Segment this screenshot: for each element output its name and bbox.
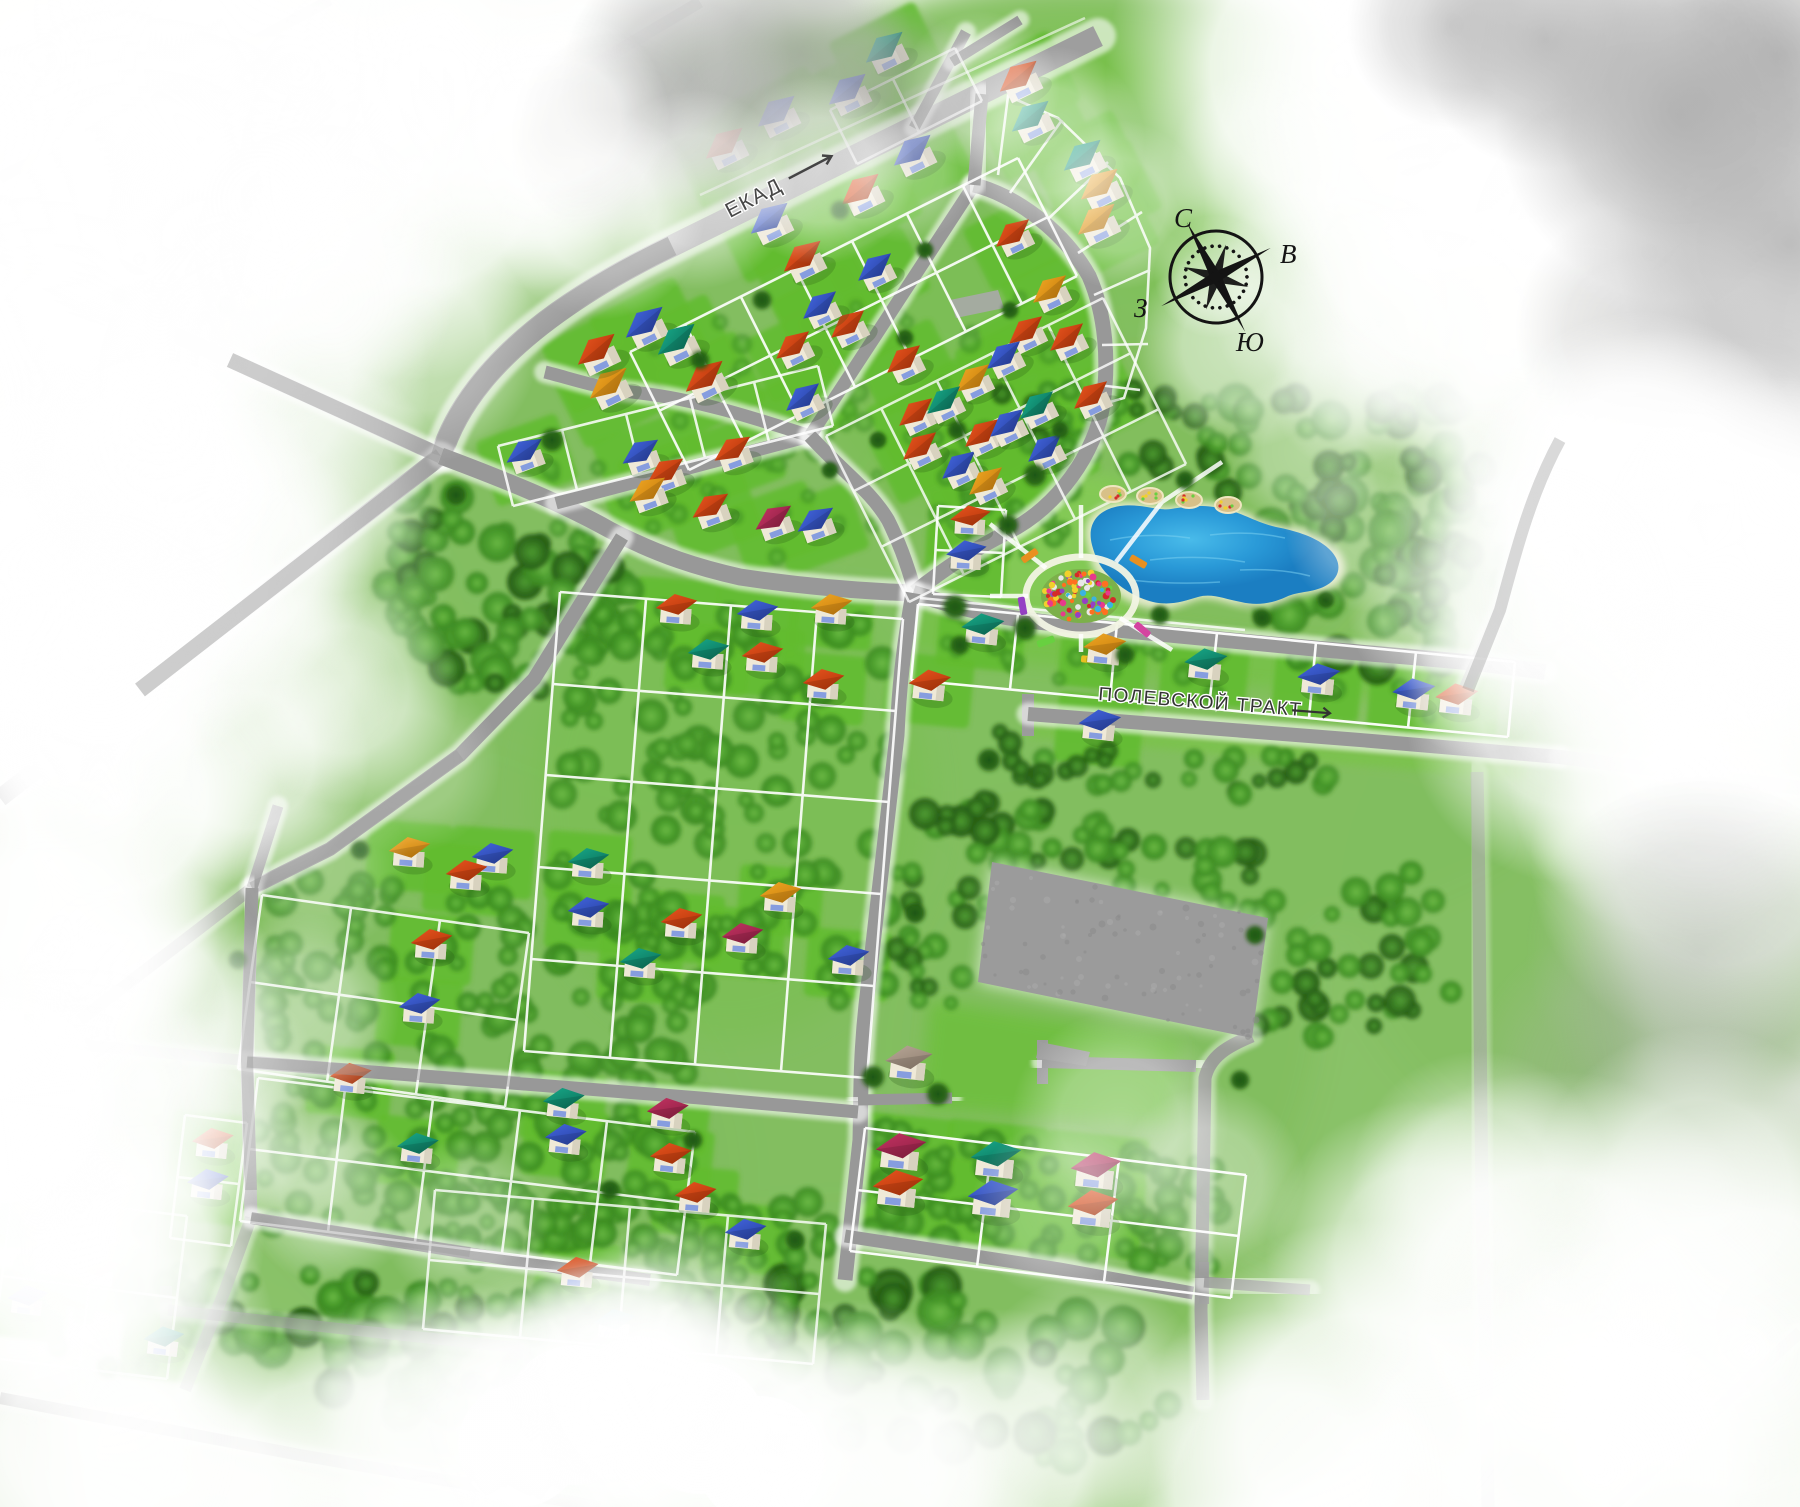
svg-text:В: В: [1280, 239, 1297, 269]
svg-text:З: З: [1134, 293, 1147, 323]
svg-text:С: С: [1174, 203, 1193, 233]
svg-text:Ю: Ю: [1235, 327, 1264, 357]
